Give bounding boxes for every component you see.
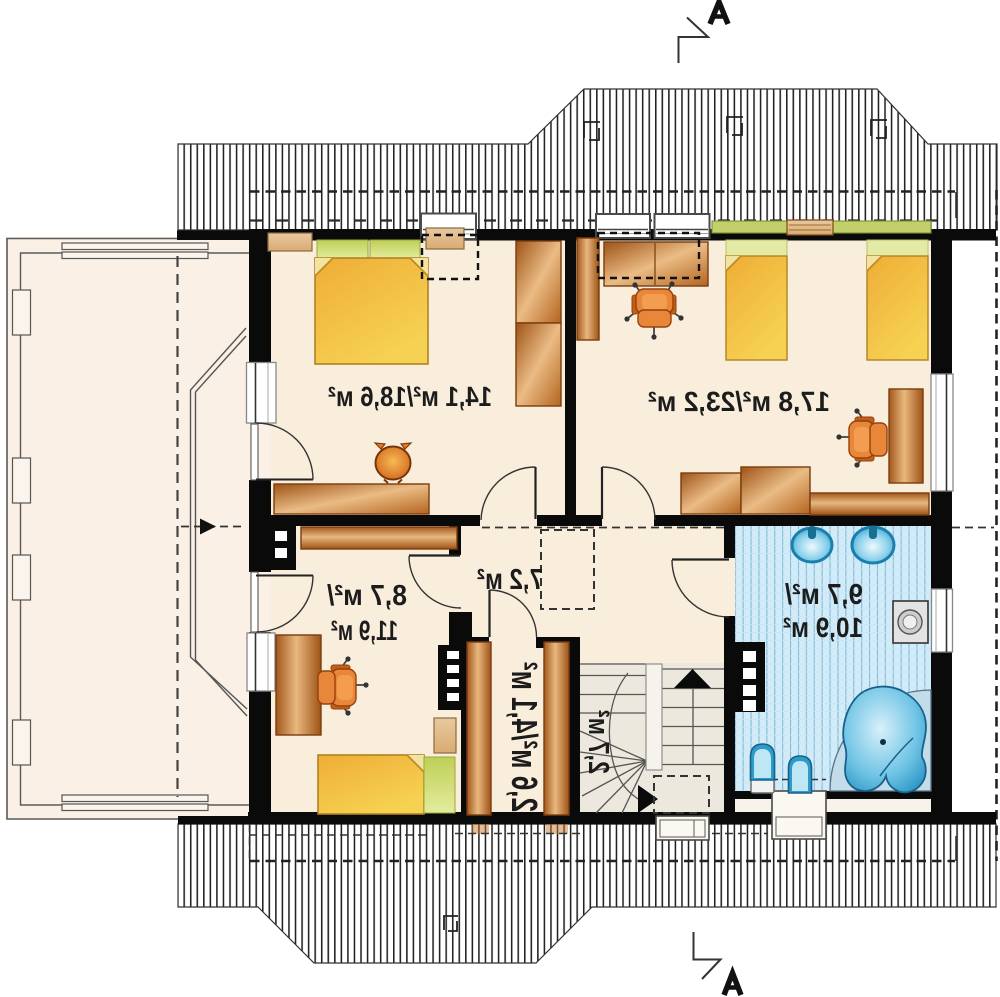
- svg-text:14,1 м²/18,6 м²: 14,1 м²/18,6 м²: [328, 381, 492, 412]
- svg-text:10,9 м²: 10,9 м²: [783, 612, 863, 643]
- svg-text:2,6 м²/4,1 м²: 2,6 м²/4,1 м²: [504, 662, 545, 812]
- svg-text:11,9 м²: 11,9 м²: [331, 615, 398, 646]
- svg-text:7,2 м²: 7,2 м²: [477, 564, 543, 596]
- svg-text:8,7 м²/: 8,7 м²/: [327, 580, 407, 612]
- svg-text:9,7 м²/: 9,7 м²/: [785, 579, 863, 611]
- svg-text:2,7 м²: 2,7 м²: [582, 710, 614, 774]
- svg-text:17,8 м²/23,2 м²: 17,8 м²/23,2 м²: [648, 386, 830, 417]
